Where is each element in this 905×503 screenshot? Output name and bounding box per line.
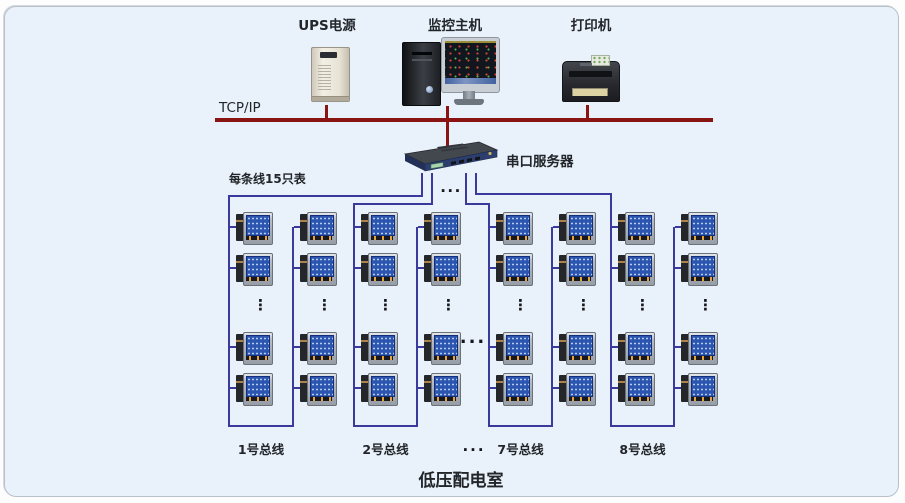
power-meter	[424, 212, 459, 243]
column-ellipsis: ⋮	[378, 298, 393, 313]
meter-screen	[371, 335, 395, 356]
meter-buttons	[434, 236, 456, 240]
power-meter	[559, 212, 594, 243]
meter-buttons	[628, 397, 650, 401]
meter-buttons	[434, 397, 456, 401]
power-meter	[496, 253, 531, 284]
power-meter	[424, 253, 459, 284]
meter-buttons	[310, 397, 332, 401]
meter-screen	[434, 215, 458, 236]
host-drive-bay-2	[412, 59, 432, 61]
power-meter	[361, 212, 396, 243]
power-meter	[236, 332, 271, 363]
meter-screen	[569, 215, 593, 236]
power-meter	[618, 253, 653, 284]
printer-output-tray	[572, 88, 608, 96]
host-power-button-icon	[426, 86, 433, 93]
meter-buttons	[434, 356, 456, 360]
bus-bottom-line	[353, 425, 418, 427]
meter-screen	[628, 376, 652, 397]
meter-buttons	[434, 277, 456, 281]
server-output-line-2	[431, 173, 433, 205]
meter-buttons	[569, 356, 591, 360]
power-meter	[300, 332, 335, 363]
feeder-line-bus-7	[465, 203, 490, 205]
power-meter	[300, 212, 335, 243]
meter-screen	[371, 215, 395, 236]
meters-per-line-note: 每条线15只表	[229, 170, 306, 187]
meter-buttons	[371, 277, 393, 281]
meter-buttons	[628, 236, 650, 240]
meter-screen	[691, 376, 715, 397]
meter-screen	[569, 256, 593, 277]
power-meter	[559, 253, 594, 284]
meter-screen	[628, 256, 652, 277]
column-ellipsis: ⋮	[513, 298, 528, 313]
power-meter	[361, 253, 396, 284]
power-meter	[424, 373, 459, 404]
meter-screen	[506, 376, 530, 397]
meter-screen	[246, 335, 270, 356]
meter-buttons	[371, 356, 393, 360]
meter-buttons	[246, 356, 268, 360]
host-label: 监控主机	[419, 14, 491, 34]
server-output-line-4	[475, 173, 477, 195]
bus-trunk-left-line	[610, 193, 612, 427]
meter-buttons	[246, 277, 268, 281]
column-ellipsis: ⋮	[317, 298, 332, 313]
bus-bottom-line	[488, 425, 553, 427]
meter-buttons	[246, 236, 268, 240]
bus-bottom-line	[610, 425, 675, 427]
meter-buttons	[569, 397, 591, 401]
meter-buttons	[506, 397, 528, 401]
host-monitor-device	[441, 37, 500, 93]
column-ellipsis: ⋮	[253, 298, 268, 313]
meter-screen	[310, 335, 334, 356]
meter-screen	[434, 376, 458, 397]
ups-base	[312, 96, 349, 101]
server-outputs-ellipsis: ...	[440, 178, 462, 196]
meter-buttons	[628, 277, 650, 281]
meter-buttons	[310, 277, 332, 281]
tcpip-bus-line	[215, 118, 713, 122]
power-meter	[361, 373, 396, 404]
power-meter	[300, 373, 335, 404]
server-output-line-1	[421, 173, 423, 197]
meter-buttons	[371, 397, 393, 401]
host-tower-device	[402, 42, 441, 106]
printer-display	[580, 63, 592, 66]
meter-screen	[506, 256, 530, 277]
power-meter	[681, 332, 716, 363]
feeder-line-bus-2	[353, 203, 433, 205]
bus-trunk-left-line	[228, 195, 230, 427]
meter-screen	[246, 215, 270, 236]
power-meter	[618, 332, 653, 363]
ups-display	[320, 52, 337, 58]
feeder-line-bus-1	[228, 195, 423, 197]
meter-screen	[691, 215, 715, 236]
meter-buttons	[691, 236, 713, 240]
bus-trunk-right-line	[551, 227, 553, 427]
host-drive-bay	[412, 52, 432, 55]
meter-screen	[506, 335, 530, 356]
column-ellipsis: ⋮	[441, 298, 456, 313]
host-drop-line	[446, 106, 449, 118]
power-meter	[236, 373, 271, 404]
power-meter	[496, 212, 531, 243]
meter-buttons	[569, 236, 591, 240]
power-meter	[236, 253, 271, 284]
printer-control-panel	[569, 71, 612, 77]
printer-label: 打印机	[556, 14, 626, 34]
meter-screen	[628, 335, 652, 356]
bus-label: 2号总线	[341, 439, 431, 458]
power-meter	[496, 373, 531, 404]
printer-paper	[591, 55, 610, 66]
meter-screen	[371, 376, 395, 397]
meter-screen	[628, 215, 652, 236]
meter-screen	[569, 376, 593, 397]
power-meter	[681, 373, 716, 404]
server-output-line-3	[465, 173, 467, 205]
meter-buttons	[628, 356, 650, 360]
monitor-stand	[454, 99, 484, 105]
meter-buttons	[506, 236, 528, 240]
bus-label: 7号总线	[476, 439, 566, 458]
ups-drop-line	[325, 105, 328, 118]
meter-screen	[310, 215, 334, 236]
bus-trunk-right-line	[673, 227, 675, 427]
meter-screen	[691, 256, 715, 277]
bus-label: 1号总线	[216, 439, 306, 458]
column-ellipsis: ⋮	[698, 298, 713, 313]
power-meter	[236, 212, 271, 243]
meter-screen	[246, 376, 270, 397]
printer-drop-line	[586, 105, 589, 118]
scada-toolbar	[445, 78, 496, 84]
meter-screen	[434, 335, 458, 356]
power-meter	[618, 373, 653, 404]
bus-bottom-line	[228, 425, 294, 427]
bus-trunk-right-line	[416, 227, 418, 427]
meter-buttons	[310, 236, 332, 240]
meter-buttons	[691, 356, 713, 360]
diagram-canvas: UPS电源 监控主机 打印机 TCP/IP	[0, 0, 905, 503]
power-meter	[361, 332, 396, 363]
meter-screen	[310, 376, 334, 397]
power-meter	[424, 332, 459, 363]
power-meter	[496, 332, 531, 363]
meter-buttons	[691, 277, 713, 281]
power-meter	[559, 332, 594, 363]
printer-device	[562, 61, 620, 102]
ups-label: UPS电源	[292, 14, 362, 34]
power-meter	[681, 253, 716, 284]
bus-trunk-left-line	[488, 203, 490, 427]
meter-screen	[434, 256, 458, 277]
meter-screen	[310, 256, 334, 277]
meter-buttons	[246, 397, 268, 401]
meter-screen	[371, 256, 395, 277]
power-meter	[618, 212, 653, 243]
meter-buttons	[310, 356, 332, 360]
ups-device	[311, 47, 350, 102]
power-meter	[300, 253, 335, 284]
column-ellipsis: ⋮	[635, 298, 650, 313]
meter-buttons	[506, 277, 528, 281]
meter-screen	[246, 256, 270, 277]
bus-trunk-right-line	[292, 227, 294, 427]
omitted-buses-ellipsis: ...	[459, 327, 487, 348]
column-ellipsis: ⋮	[576, 298, 591, 313]
meter-screen	[569, 335, 593, 356]
serial-server-label: 串口服务器	[506, 150, 574, 170]
meter-buttons	[569, 277, 591, 281]
bus-trunk-left-line	[353, 203, 355, 427]
meter-buttons	[506, 356, 528, 360]
meter-buttons	[691, 397, 713, 401]
power-meter	[681, 212, 716, 243]
serial-server-device	[397, 138, 503, 176]
tcpip-label: TCP/IP	[219, 100, 261, 116]
meter-screen	[691, 335, 715, 356]
ups-vents	[318, 65, 331, 91]
meter-buttons	[371, 236, 393, 240]
meter-screen	[506, 215, 530, 236]
room-label: 低压配电室	[381, 466, 541, 491]
feeder-line-bus-8	[475, 193, 612, 195]
bus-label: 8号总线	[598, 439, 688, 458]
power-meter	[559, 373, 594, 404]
